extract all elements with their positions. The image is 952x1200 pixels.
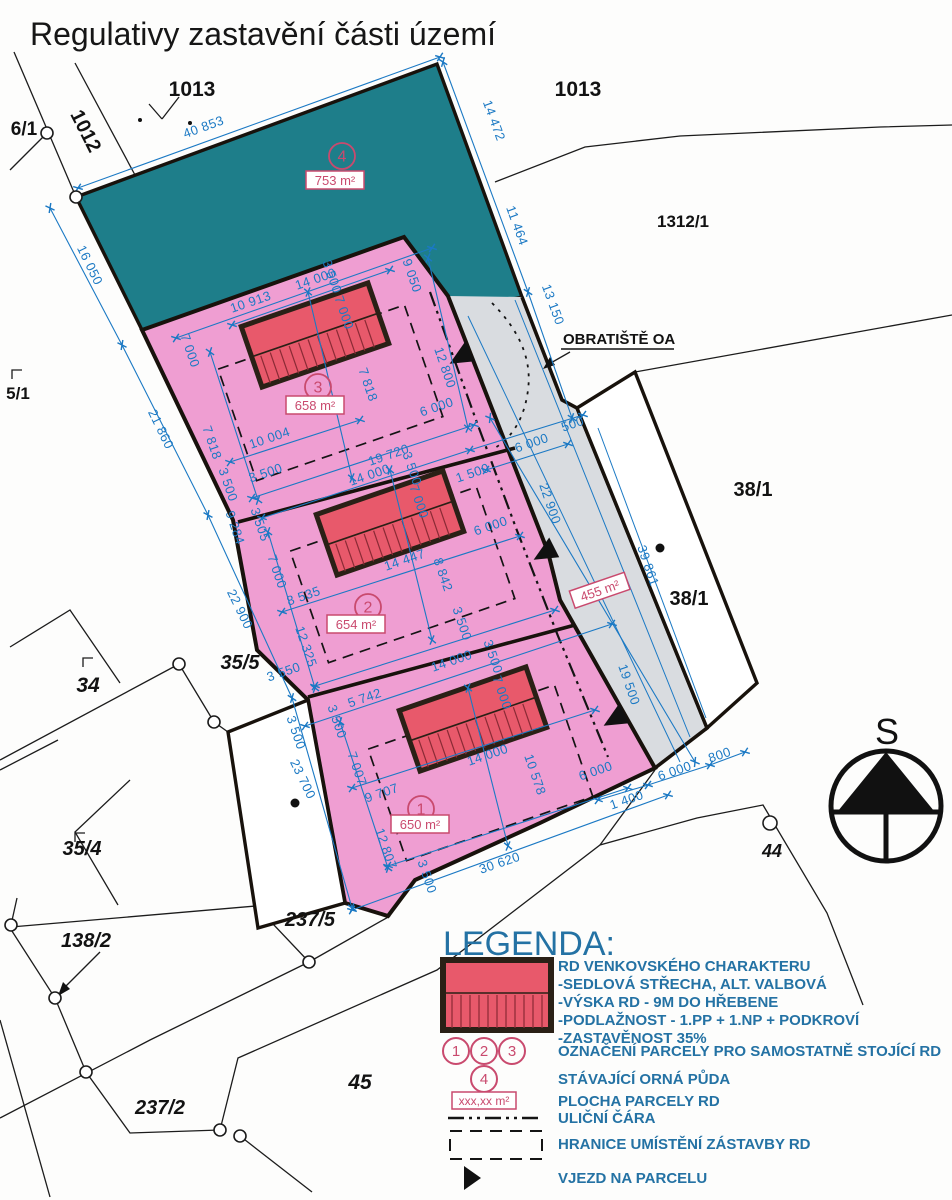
svg-text:2: 2 — [480, 1043, 488, 1060]
svg-text:654 m²: 654 m² — [336, 617, 377, 632]
parcel-label: 1013 — [555, 78, 602, 101]
legend: LEGENDA: RD VENKOVSKÉHO CHARAKTERU -SEDL… — [443, 925, 941, 1190]
legend-house-swatch — [443, 960, 551, 1030]
svg-text:1: 1 — [452, 1043, 460, 1060]
legend-item-label: HRANICE UMÍSTĚNÍ ZÁSTAVBY RD — [558, 1135, 811, 1153]
parcel-label: 34 — [76, 674, 100, 697]
parcel-label: 45 — [347, 1071, 372, 1094]
svg-text:3: 3 — [508, 1043, 516, 1060]
parcel-label: 1312/1 — [657, 212, 709, 231]
parcel-label: 237/5 — [284, 909, 336, 931]
legend-entrance-arrow-sample — [464, 1166, 481, 1190]
north-compass-icon: S — [831, 711, 941, 861]
dimension-label: 30 620 — [477, 849, 522, 877]
parcel-label: 5/1 — [6, 384, 30, 403]
dimension-label: 21 860 — [145, 407, 177, 451]
site-plan-page: Regulativy zastavění části území — [0, 0, 952, 1200]
svg-text:658 m²: 658 m² — [295, 398, 336, 413]
dimension-label: 11 464 — [503, 204, 531, 248]
plot-number: 4 — [338, 149, 347, 166]
area-label: 654 m² — [327, 615, 385, 633]
legend-item-label: PLOCHA PARCELY RD — [558, 1093, 720, 1110]
plot-number: 2 — [364, 600, 373, 617]
site-plan-map: Regulativy zastavění části území — [0, 0, 952, 1200]
area-label: 753 m² — [306, 171, 364, 189]
page-title: Regulativy zastavění části území — [30, 16, 496, 52]
legend-item-label: VJEZD NA PARCELU — [558, 1170, 707, 1187]
legend-rd-line: -VÝSKA RD - 9M DO HŘEBENE — [558, 993, 778, 1011]
parcel-label: 6/1 — [11, 119, 38, 140]
legend-area-sample: xxx,xx m² — [459, 1094, 510, 1108]
parcel-label: 44 — [761, 841, 782, 861]
parcel-label: 35/5 — [221, 652, 261, 674]
parcel-label: OBRATIŠTĚ OA — [563, 330, 675, 348]
parcel-label: 1012 — [65, 106, 105, 156]
legend-rd-line: -PODLAŽNOST - 1.PP + 1.NP + PODKROVÍ — [558, 1011, 860, 1029]
svg-text:753 m²: 753 m² — [315, 173, 356, 188]
svg-text:650 m²: 650 m² — [400, 817, 441, 832]
svg-text:4: 4 — [480, 1071, 488, 1088]
area-label: 650 m² — [391, 815, 449, 833]
dimension-label: 800 — [706, 744, 733, 766]
parcel-label: 138/2 — [61, 930, 111, 952]
legend-rd-title: RD VENKOVSKÉHO CHARAKTERU — [558, 958, 811, 975]
parcel-label: 237/2 — [134, 1097, 185, 1119]
legend-envelope-sample — [450, 1131, 542, 1159]
parcel-label: 38/1 — [670, 588, 709, 610]
dimension-label: 14 472 — [480, 98, 509, 143]
dimension-label: 13 150 — [539, 282, 568, 327]
compass-letter: S — [875, 711, 899, 752]
legend-item-label: STÁVAJÍCÍ ORNÁ PŮDA — [558, 1069, 730, 1088]
parcel-label: 38/1 — [734, 479, 773, 501]
legend-rd-line: -SEDLOVÁ STŘECHA, ALT. VALBOVÁ — [558, 975, 827, 993]
parcel-label: 1013 — [169, 78, 216, 101]
parcel-label: 35/4 — [63, 838, 102, 860]
legend-item-label: ULIČNÍ ČÁRA — [558, 1109, 656, 1127]
area-label: 658 m² — [286, 396, 344, 414]
legend-item-label: OZNAČENÍ PARCELY PRO SAMOSTATNĚ STOJÍCÍ … — [558, 1042, 941, 1060]
plot-number: 3 — [314, 380, 323, 397]
